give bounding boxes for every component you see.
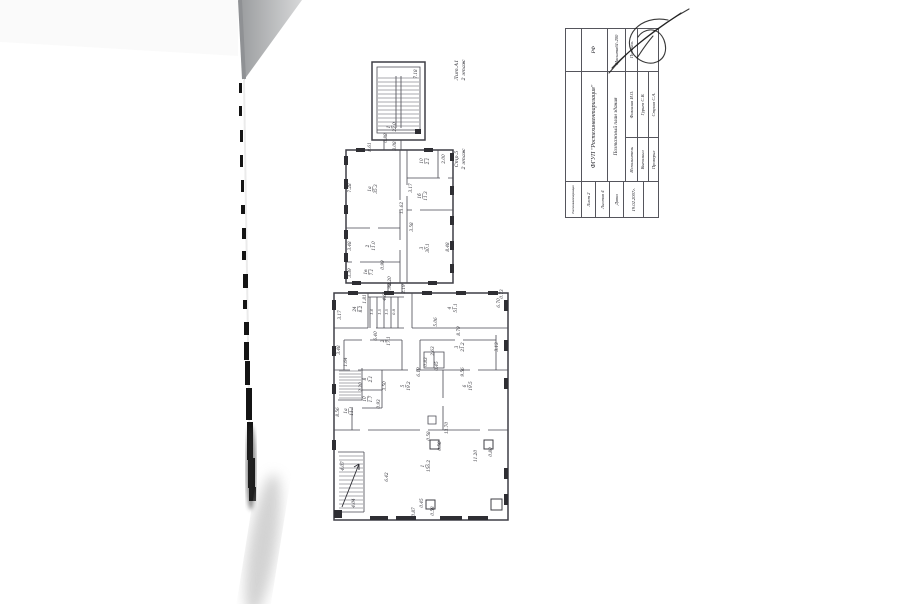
plan-dimension-text: 1.7 xyxy=(368,395,373,402)
plan-dimension-text: 0.80 xyxy=(488,447,493,457)
plan-dimension-text: 0.8 xyxy=(392,308,396,314)
room-number: 1 xyxy=(420,465,425,468)
plan-dimension-text: 11.20 xyxy=(473,450,478,462)
plan-dimension-text: 8.48 xyxy=(445,242,450,252)
plan-dimension-text: 3.17 xyxy=(337,310,342,320)
plan-dimension-text: 7.18 xyxy=(413,69,418,79)
plan-dimension-text: 1.98 xyxy=(387,283,392,293)
plan-dimension-text: 3.39 xyxy=(347,268,352,278)
plan-dimension-text: 22.0 xyxy=(392,122,397,133)
plan-dimension-text: 35.3 xyxy=(373,184,378,194)
plan-dimension-text: 0.88 xyxy=(383,133,388,143)
room-number: 1 xyxy=(386,126,391,129)
org-small-label: Ростехинвентаризация xyxy=(566,182,582,217)
role-column-header: Исполнитель xyxy=(626,138,638,181)
section-label: 2 этаж xyxy=(461,148,467,170)
scanned-document-page: Лит.А12 этажСтр.52 этаж7.18122.00.883.08… xyxy=(0,0,900,604)
plan-dimension-text: 8.56 xyxy=(335,407,340,417)
scale-label: Масштаб xyxy=(614,45,619,65)
plan-dimension-text: 3.13 xyxy=(494,342,499,352)
room-number: 10 xyxy=(362,396,367,402)
scale-cell: Масштаб 1:200 xyxy=(608,29,626,71)
plan-dimension-text: 2.19 xyxy=(401,284,406,295)
title-block: Ростехинвентаризация Лист 2 Листов 4 Дат… xyxy=(565,28,659,218)
date-value: 19.02.2007г. xyxy=(624,182,644,217)
section-label: 2 этаж xyxy=(461,59,467,81)
plan-dimension-text: 2.1 xyxy=(425,158,430,166)
plan-dimension-text: 0.45 xyxy=(434,361,439,371)
plan-dimension-text: 0.58 xyxy=(426,431,431,441)
plan-dimension-text: 156.2 xyxy=(426,460,431,472)
room-number: 1в xyxy=(363,269,368,275)
plan-dimension-text: 0.45 xyxy=(419,498,424,508)
plan-dimension-text: 0.73 xyxy=(499,289,504,299)
plan-dimension-text: 3.48 xyxy=(347,241,352,251)
plan-dimension-text: 21.2 xyxy=(460,342,465,353)
date-label: Дата xyxy=(610,182,624,217)
plan-dimension-text: 0.99 xyxy=(380,260,385,270)
empty-cell xyxy=(644,182,658,217)
plan-dimension-text: 1.64 xyxy=(343,357,348,367)
plan-dimension-text: 8.61 xyxy=(367,142,372,151)
plan-dimension-text: 17.1 xyxy=(386,336,391,345)
window-openings xyxy=(332,129,508,520)
plan-dimension-text: 3.08 xyxy=(392,141,397,151)
plan-dimension-text: 7.28 xyxy=(347,183,352,193)
plan-dimension-text: 8.2 xyxy=(358,305,363,312)
plan-dimension-text: 4.61 xyxy=(382,291,387,301)
role-row-2: Проверил xyxy=(649,138,658,181)
plan-dimension-text: 2.1 xyxy=(368,376,373,384)
page-corner-shadow xyxy=(0,0,302,470)
plan-dimension-text: 0.58 xyxy=(437,441,442,451)
room-number: 1а xyxy=(343,408,348,414)
plan-dimension-text: 9.56 xyxy=(460,367,465,377)
plan-dimension-text: 7.1 xyxy=(369,269,374,276)
empty-cell xyxy=(638,29,658,71)
empty-top-row xyxy=(566,29,582,71)
room-number: 6 xyxy=(462,384,467,387)
floor-plan-drawing: Лит.А12 этажСтр.52 этаж7.18122.00.883.08… xyxy=(0,0,900,604)
plan-dimension-text: 1.81 xyxy=(362,294,367,303)
room-number: 2 xyxy=(380,339,385,343)
plan-dimension-text: 1.6 xyxy=(370,308,374,314)
name-row-2: Стуков С.А. xyxy=(649,72,658,138)
plan-dimension-text: 0.83 xyxy=(423,357,428,367)
title-block-table: Ростехинвентаризация Лист 2 Листов 4 Дат… xyxy=(565,28,659,218)
section-label: Лит.А1 xyxy=(454,60,460,82)
plan-dimension-text: 11.3 xyxy=(423,191,428,201)
room-number: 5 xyxy=(400,384,405,387)
plan-dimension-text: 19.5 xyxy=(468,381,473,391)
room-number: 3 xyxy=(454,345,459,348)
plan-dimension-text: 4.07 xyxy=(340,461,345,472)
plan-dimension-text: 2.20 xyxy=(358,382,363,393)
plan-dimension-text: 2.63 xyxy=(430,346,435,357)
room-number: 4 xyxy=(447,306,452,310)
document-title: Поэтажный план здания xyxy=(608,72,626,182)
scale-value: 1:200 xyxy=(614,35,619,46)
room-number: 3 xyxy=(419,246,424,249)
plan-dimension-text: 8.79 xyxy=(456,326,461,336)
plan-dimension-text: 2.00 xyxy=(441,154,446,165)
plan-dimension-text: 5.06 xyxy=(433,317,438,327)
plan-dimension-text: 19.2 xyxy=(406,381,411,391)
plan-dimension-text: 11.1 xyxy=(349,406,354,415)
name-column-header: Фамилия И.О. xyxy=(626,72,638,138)
room-number: 2 xyxy=(365,244,370,248)
signature-label: Подпись xyxy=(626,29,638,71)
room-number: 8 xyxy=(362,377,367,380)
room-number: 24 xyxy=(352,306,357,313)
plan-dimension-text: 3.50 xyxy=(382,381,387,391)
plan-annotations: Лит.А12 этажСтр.52 этаж7.18122.00.883.08… xyxy=(335,59,504,516)
role-row-1: Выполнил xyxy=(638,138,649,181)
sheets-total: Листов 4 xyxy=(596,182,610,217)
name-row-1: Гурьев С.В. xyxy=(638,72,649,138)
plan-dimension-text: 3.58 xyxy=(409,222,414,232)
plan-dimension-text: 0.58 xyxy=(430,506,435,516)
plan-dimension-text: 4.04 xyxy=(351,498,356,509)
room-number: 10 xyxy=(419,158,424,164)
sheet-number: Лист 2 xyxy=(582,182,596,217)
section-label: Стр.5 xyxy=(454,151,460,168)
room-number: 1б xyxy=(417,193,422,199)
plan-dimension-text: 1.5 xyxy=(378,308,382,314)
plan-dimension-text: 1.5 xyxy=(385,308,389,314)
plan-dimension-text: 13.62 xyxy=(399,202,404,214)
plan-dimension-text: 3.48 xyxy=(336,345,341,355)
plan-dimension-text: 3.17 xyxy=(408,183,413,193)
empty-top-row xyxy=(566,72,582,182)
plan-dimension-text: 0.93 xyxy=(376,399,381,409)
plan-dimension-text: 11.0 xyxy=(371,241,376,251)
rf-label: РФ xyxy=(582,29,608,71)
plan-dimension-text: 0.87 xyxy=(411,507,416,517)
plan-dimension-text: 13.70 xyxy=(444,422,449,434)
plan-dimension-text: 30.1 xyxy=(425,243,430,252)
plan-dimension-text: 51.1 xyxy=(453,303,458,312)
organization-name: ФГУП "Ростехинвентаризация" xyxy=(582,72,608,182)
plan-dimension-text: 6.40 xyxy=(373,331,378,341)
room-number: 1а xyxy=(367,186,372,192)
plan-dimension-text: 6.42 xyxy=(384,472,389,482)
plan-dimension-text: 6.19 xyxy=(416,367,421,377)
